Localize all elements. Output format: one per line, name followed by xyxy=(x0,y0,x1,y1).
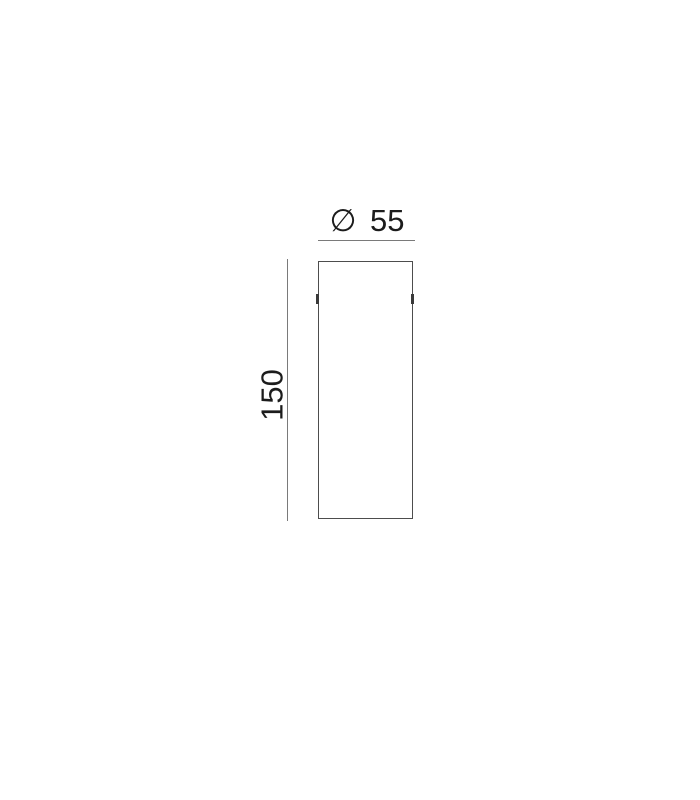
height-dimension-label: 150 xyxy=(257,369,288,421)
diameter-dimension-line xyxy=(318,240,415,241)
height-dimension-line xyxy=(287,259,288,521)
left-seam-notch xyxy=(316,294,319,304)
technical-drawing-canvas: ∅ 55 150 xyxy=(0,0,700,800)
right-seam-notch xyxy=(411,294,414,304)
diameter-dimension-label: ∅ 55 xyxy=(312,204,422,238)
cylinder-body-outline xyxy=(318,261,413,519)
